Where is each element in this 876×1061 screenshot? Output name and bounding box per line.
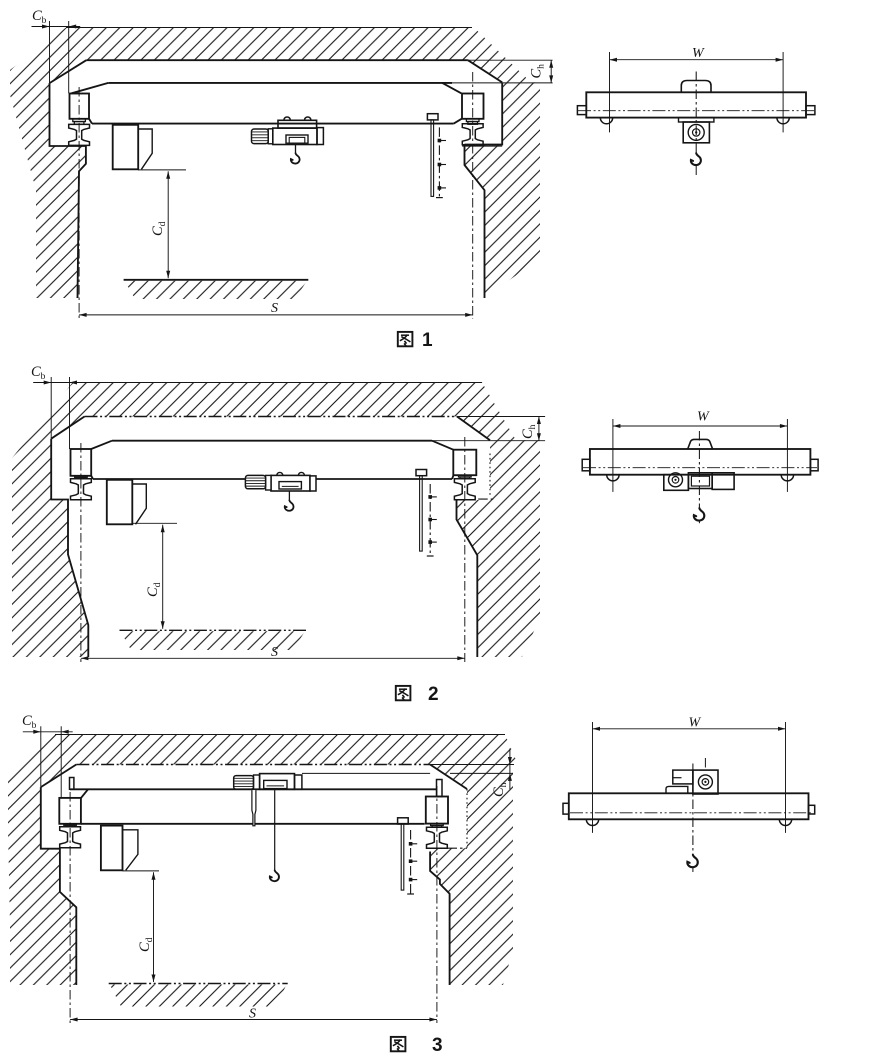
svg-text:2: 2 — [428, 684, 439, 705]
svg-text:3: 3 — [432, 1035, 443, 1056]
svg-text:S: S — [271, 645, 278, 660]
svg-text:S: S — [249, 1007, 256, 1022]
svg-text:1: 1 — [422, 330, 433, 351]
svg-text:W: W — [692, 46, 705, 61]
svg-text:W: W — [697, 410, 710, 425]
svg-text:W: W — [689, 716, 702, 731]
svg-text:S: S — [271, 301, 278, 316]
